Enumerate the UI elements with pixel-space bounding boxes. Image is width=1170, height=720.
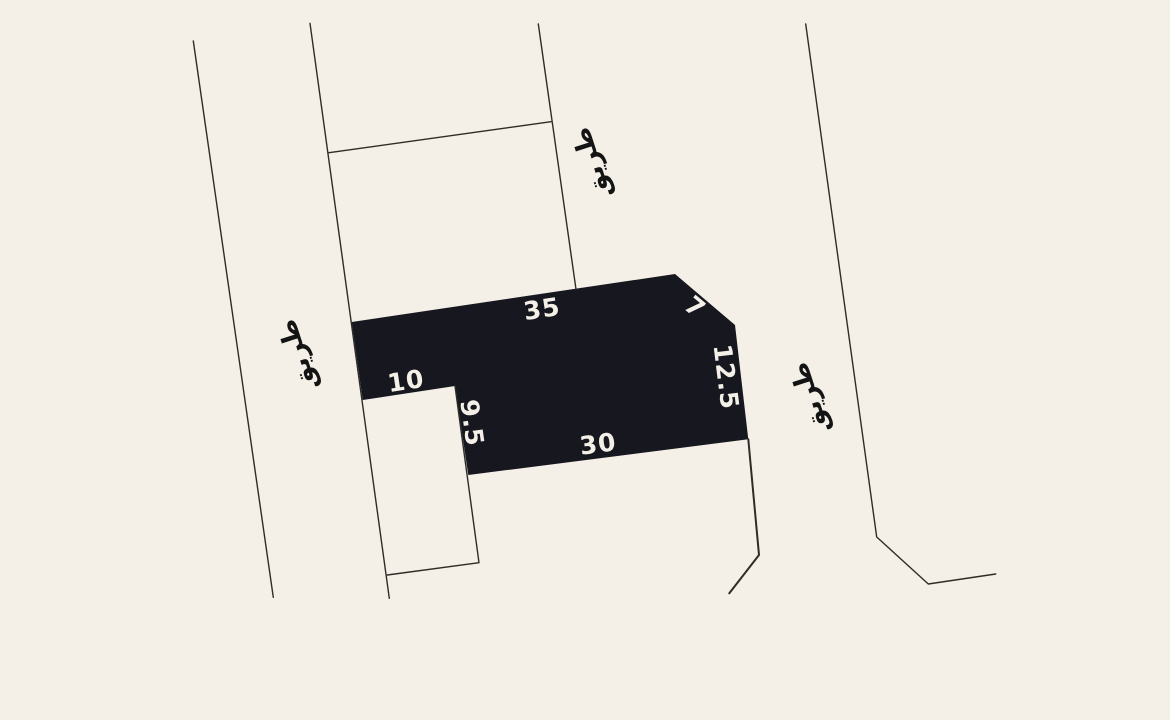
neighbor-parcel-top-boundary	[329, 122, 551, 153]
road-line-left	[193, 41, 273, 597]
dimension-label-top-edge: 35	[522, 292, 563, 326]
dimension-label-notch-top-edge: 10	[386, 364, 427, 398]
road-line-middle	[310, 23, 389, 598]
map-canvas[interactable]: 35 7 12.5 30 9.5 10 طريق طريق طريق	[0, 0, 1170, 720]
dimension-label-bottom-edge: 30	[578, 427, 618, 460]
boundary-line-lower-right	[729, 439, 759, 593]
boundary-line-upper-middle	[538, 24, 576, 289]
parcel-map-layer	[0, 0, 1170, 720]
road-line-right	[806, 24, 996, 584]
